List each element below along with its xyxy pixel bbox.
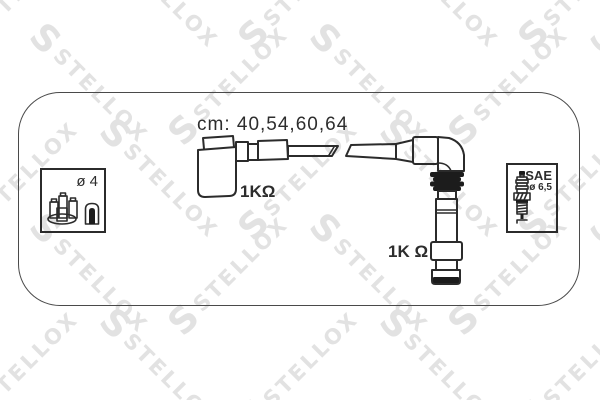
stellox-s-logo: S <box>582 17 600 61</box>
right-resistance-label: 1K Ω <box>388 242 428 262</box>
plug-diameter-label: ø 6,5 <box>529 182 552 193</box>
stellox-s-logo: S <box>582 207 600 251</box>
right-shaft <box>436 199 457 242</box>
right-coupler <box>431 242 462 260</box>
left-boot-step <box>248 144 258 160</box>
cable-segment-right <box>346 144 396 159</box>
distributor-cap-icon <box>44 191 82 227</box>
stellox-watermark-text: STELLOX <box>119 329 224 400</box>
terminal-boot-icon <box>84 202 100 225</box>
catalog-image: SSTELLOXSSTELLOXSSTELLOXSSTELLOXSSTELLOX… <box>0 0 600 400</box>
right-lower-section <box>436 260 457 270</box>
right-neck <box>438 191 456 199</box>
spark-plug-icon <box>513 171 531 225</box>
stellox-watermark: SSTELLOX <box>372 0 507 58</box>
stellox-watermark: SSTELLOX <box>92 0 227 58</box>
right-elbow <box>438 137 464 171</box>
right-end-cap-band <box>433 277 459 283</box>
spark-plug-spec-box: SAE ø 6,5 <box>506 163 558 233</box>
stellox-watermark-text: STELLOX <box>399 0 504 53</box>
bellows <box>430 172 464 191</box>
stellox-watermark: SSTELLOX <box>512 302 600 400</box>
stellox-watermark-text: STELLOX <box>399 329 504 400</box>
right-elbow-inner <box>438 163 451 171</box>
left-boot-neck <box>236 142 248 161</box>
right-body <box>413 137 438 164</box>
left-boot-body <box>198 147 236 197</box>
cable-segment-left <box>288 146 338 156</box>
stellox-watermark-text: STELLOX <box>119 0 224 53</box>
left-ferrule <box>258 140 288 160</box>
distributor-diameter-label: ø 4 <box>76 173 98 190</box>
left-resistance-label: 1KΩ <box>240 182 275 202</box>
ignition-cable-drawing <box>190 130 475 292</box>
stellox-watermark-text: STELLOX <box>0 307 83 400</box>
stellox-watermark: SSTELLOX <box>0 302 88 400</box>
stellox-watermark-text: STELLOX <box>539 307 600 400</box>
stellox-watermark-text: STELLOX <box>259 307 364 400</box>
right-ferrule <box>396 140 413 162</box>
stellox-watermark: SSTELLOX <box>582 207 600 342</box>
stellox-watermark: SSTELLOX <box>582 17 600 152</box>
stellox-watermark: SSTELLOX <box>232 302 367 400</box>
distributor-spec-box: ø 4 <box>40 168 106 233</box>
